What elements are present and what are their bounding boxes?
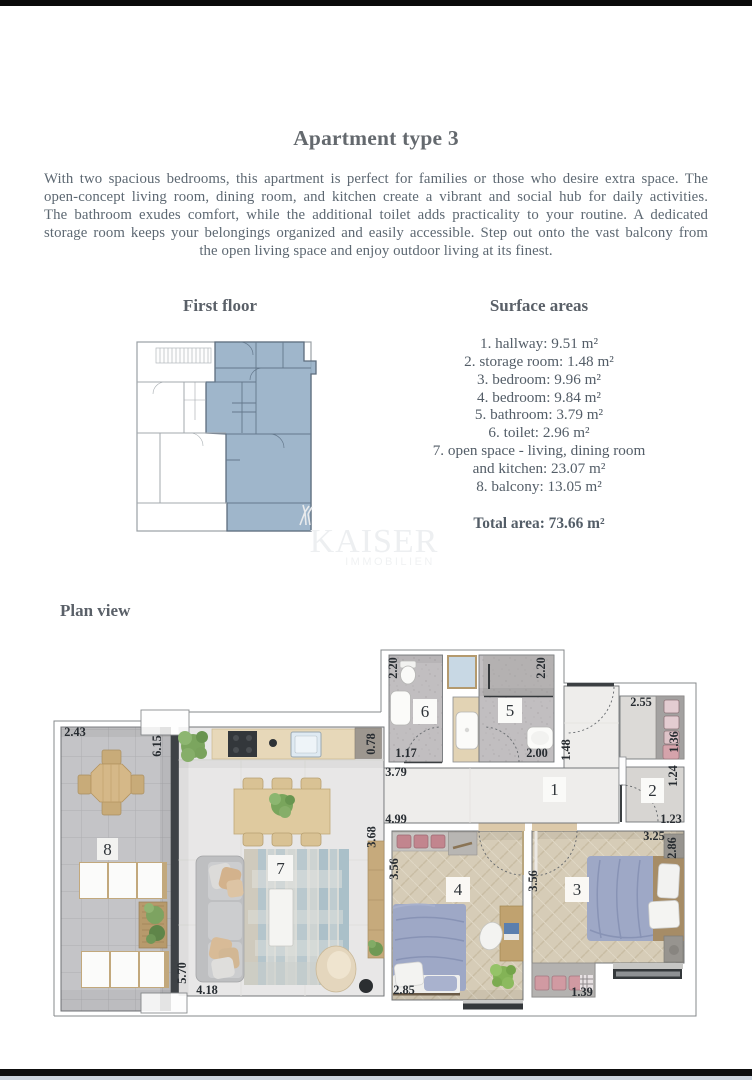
svg-text:1.39: 1.39 bbox=[571, 985, 593, 999]
svg-text:2.85: 2.85 bbox=[393, 983, 415, 997]
svg-text:5: 5 bbox=[506, 701, 515, 720]
svg-text:1: 1 bbox=[550, 780, 559, 799]
svg-text:3.68: 3.68 bbox=[365, 826, 379, 848]
svg-text:3.25: 3.25 bbox=[643, 829, 665, 843]
svg-text:IMMOBILIEN: IMMOBILIEN bbox=[345, 556, 435, 568]
svg-text:1.17: 1.17 bbox=[395, 746, 417, 760]
svg-text:2.55: 2.55 bbox=[630, 695, 652, 709]
svg-text:2.86: 2.86 bbox=[665, 837, 679, 859]
svg-text:8: 8 bbox=[103, 840, 112, 859]
svg-text:0.78: 0.78 bbox=[364, 733, 378, 755]
svg-text:3.79: 3.79 bbox=[385, 765, 407, 779]
svg-text:2: 2 bbox=[648, 781, 657, 800]
svg-text:7: 7 bbox=[276, 859, 285, 878]
svg-text:2.20: 2.20 bbox=[534, 657, 548, 679]
svg-text:1.24: 1.24 bbox=[666, 765, 680, 787]
svg-text:3.56: 3.56 bbox=[387, 858, 401, 880]
svg-text:4.99: 4.99 bbox=[385, 812, 407, 826]
svg-text:5.70: 5.70 bbox=[175, 962, 189, 984]
svg-text:3.56: 3.56 bbox=[526, 870, 540, 892]
svg-text:4.18: 4.18 bbox=[196, 983, 218, 997]
svg-text:KAISER: KAISER bbox=[310, 523, 439, 560]
svg-text:1.23: 1.23 bbox=[660, 812, 682, 826]
svg-text:2.00: 2.00 bbox=[526, 746, 548, 760]
svg-text:3: 3 bbox=[573, 880, 582, 899]
svg-text:6: 6 bbox=[421, 702, 430, 721]
svg-text:2.20: 2.20 bbox=[386, 657, 400, 679]
svg-text:2.43: 2.43 bbox=[64, 725, 86, 739]
svg-text:1.36: 1.36 bbox=[667, 731, 681, 753]
svg-text:1.48: 1.48 bbox=[559, 739, 573, 761]
svg-text:6.15: 6.15 bbox=[150, 735, 164, 757]
svg-text:4: 4 bbox=[454, 880, 463, 899]
